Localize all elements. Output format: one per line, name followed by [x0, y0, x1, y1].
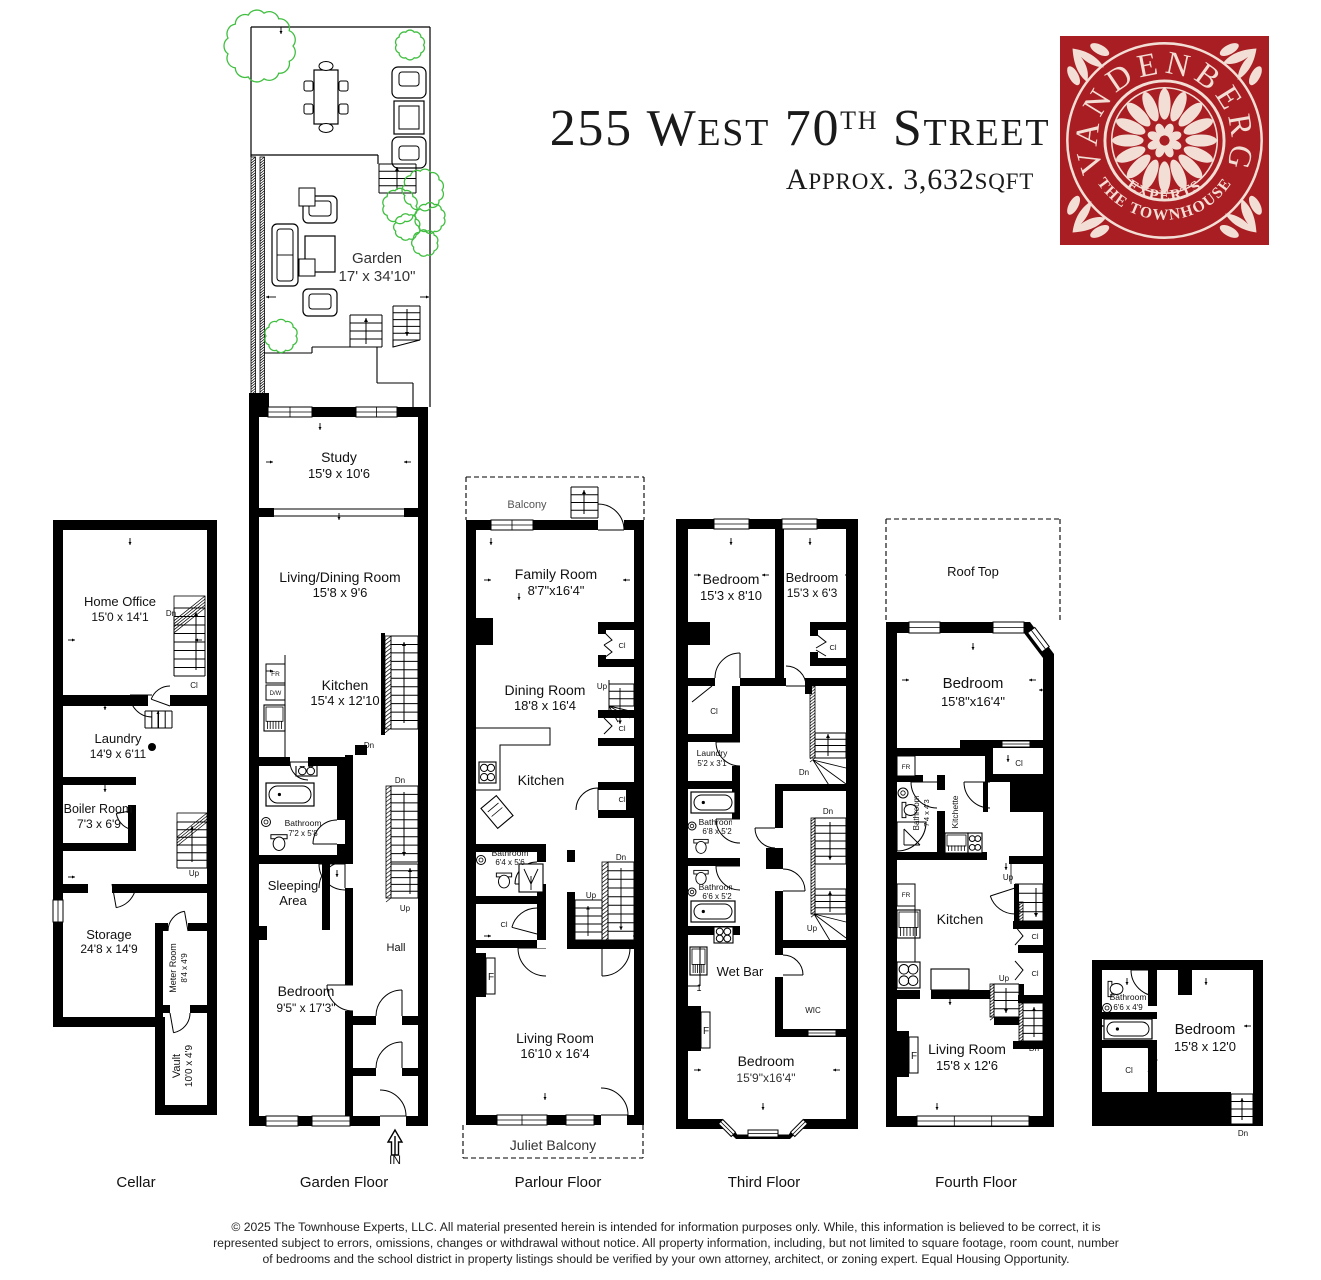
svg-text:Kitchen: Kitchen — [937, 911, 984, 927]
svg-text:Living/Dining Room: Living/Dining Room — [279, 569, 400, 585]
svg-text:Family Room: Family Room — [515, 566, 597, 582]
svg-text:Juliet Balcony: Juliet Balcony — [510, 1137, 596, 1153]
svg-text:15'8 x 12'0: 15'8 x 12'0 — [1174, 1039, 1236, 1054]
svg-text:16'10 x 16'4: 16'10 x 16'4 — [520, 1046, 589, 1061]
svg-text:Cl: Cl — [710, 707, 718, 716]
svg-text:Bathroom: Bathroom — [1110, 992, 1147, 1002]
svg-text:15'9"x16'4": 15'9"x16'4" — [736, 1071, 795, 1085]
svg-text:Cl: Cl — [829, 643, 836, 652]
svg-text:Living Room: Living Room — [928, 1041, 1006, 1057]
svg-text:9'5" x 17'3": 9'5" x 17'3" — [276, 1001, 335, 1015]
svg-text:Cl: Cl — [500, 920, 507, 929]
svg-text:8'7"x16'4": 8'7"x16'4" — [528, 583, 585, 598]
svg-text:Cl: Cl — [1125, 1066, 1133, 1075]
svg-text:IN: IN — [389, 1153, 401, 1167]
svg-text:Cellar: Cellar — [116, 1174, 155, 1191]
svg-text:of bedrooms and the school dis: of bedrooms and the school district in p… — [262, 1252, 1069, 1266]
svg-text:Up: Up — [807, 924, 818, 933]
svg-text:14'9 x 6'11: 14'9 x 6'11 — [90, 747, 147, 761]
svg-text:Bedroom: Bedroom — [738, 1053, 795, 1069]
svg-text:Kitchette: Kitchette — [950, 795, 960, 828]
svg-text:Third Floor: Third Floor — [728, 1174, 801, 1191]
svg-text:5'2 x 3'1: 5'2 x 3'1 — [697, 759, 727, 768]
svg-text:Area: Area — [279, 893, 307, 908]
svg-text:Boiler Room: Boiler Room — [64, 802, 133, 816]
svg-text:Up: Up — [586, 891, 597, 900]
svg-text:Kitchen: Kitchen — [322, 677, 369, 693]
svg-text:Cl: Cl — [1031, 932, 1038, 941]
svg-text:Cl: Cl — [1031, 969, 1038, 978]
svg-text:Dining Room: Dining Room — [505, 682, 586, 698]
svg-text:© 2025 The Townhouse Experts,: © 2025 The Townhouse Experts, LLC. All m… — [231, 1220, 1100, 1234]
svg-text:F: F — [488, 972, 494, 983]
svg-text:Cl: Cl — [190, 681, 198, 690]
svg-text:Bedroom: Bedroom — [1175, 1021, 1236, 1038]
svg-text:Bedroom: Bedroom — [943, 675, 1004, 692]
svg-text:Living Room: Living Room — [516, 1030, 594, 1046]
svg-text:1: 1 — [696, 983, 701, 993]
svg-text:Bedroom: Bedroom — [786, 570, 839, 585]
svg-text:Laundry: Laundry — [697, 748, 728, 758]
svg-text:Roof Top: Roof Top — [947, 564, 999, 579]
svg-text:FR: FR — [271, 671, 280, 678]
svg-text:15'4 x 12'10: 15'4 x 12'10 — [310, 693, 379, 708]
svg-text:15'3 x 8'10: 15'3 x 8'10 — [700, 588, 762, 603]
svg-text:15'8"x16'4": 15'8"x16'4" — [941, 694, 1005, 709]
svg-text:Garden: Garden — [352, 250, 402, 267]
svg-text:F: F — [911, 1051, 917, 1062]
svg-text:7'2 x 5'8: 7'2 x 5'8 — [288, 829, 318, 838]
svg-text:10'0 x 4'9: 10'0 x 4'9 — [184, 1044, 195, 1087]
svg-text:Fourth Floor: Fourth Floor — [935, 1174, 1017, 1191]
svg-text:Cl: Cl — [618, 641, 625, 650]
svg-text:15'8 x 9'6: 15'8 x 9'6 — [313, 585, 368, 600]
svg-text:Wet Bar: Wet Bar — [717, 964, 764, 979]
svg-text:Up: Up — [999, 974, 1010, 983]
svg-text:15'3 x 6'3: 15'3 x 6'3 — [787, 586, 838, 600]
svg-text:6'6 x 5'2: 6'6 x 5'2 — [702, 892, 732, 901]
svg-text:Cl: Cl — [618, 795, 625, 804]
svg-text:WIC: WIC — [805, 1006, 821, 1015]
svg-text:Dn: Dn — [799, 768, 809, 777]
svg-text:Laundry: Laundry — [95, 731, 142, 746]
svg-text:FR: FR — [902, 764, 911, 771]
svg-text:15'8 x 12'6: 15'8 x 12'6 — [936, 1058, 998, 1073]
svg-text:24'8 x 14'9: 24'8 x 14'9 — [80, 942, 138, 956]
svg-text:Dn: Dn — [166, 609, 176, 618]
svg-text:6'6 x 4'9: 6'6 x 4'9 — [1113, 1003, 1143, 1012]
svg-text:Home Office: Home Office — [84, 594, 156, 609]
svg-text:Sleeping: Sleeping — [268, 878, 319, 893]
svg-text:Garden Floor: Garden Floor — [300, 1174, 388, 1191]
svg-text:Storage: Storage — [86, 927, 132, 942]
svg-text:Bathroom: Bathroom — [492, 848, 529, 858]
svg-text:Up: Up — [400, 904, 411, 913]
svg-text:15'9 x 10'6: 15'9 x 10'6 — [308, 466, 370, 481]
svg-text:Dn: Dn — [1238, 1129, 1248, 1138]
svg-text:Up: Up — [189, 869, 200, 878]
svg-text:Balcony: Balcony — [507, 499, 547, 511]
svg-text:Dn: Dn — [395, 776, 405, 785]
svg-text:Hall: Hall — [387, 942, 406, 954]
svg-text:Up: Up — [1003, 873, 1014, 882]
svg-text:F: F — [703, 1026, 709, 1037]
svg-text:Bathroom: Bathroom — [699, 882, 736, 892]
svg-text:Bedroom: Bedroom — [278, 983, 335, 999]
svg-text:17' x 34'10": 17' x 34'10" — [339, 268, 416, 285]
svg-text:D/W: D/W — [270, 691, 282, 697]
svg-text:6'4 x 5'6: 6'4 x 5'6 — [495, 858, 525, 867]
svg-text:Bedroom: Bedroom — [703, 571, 760, 587]
svg-text:Dn: Dn — [616, 853, 626, 862]
svg-text:Cl: Cl — [1015, 759, 1023, 768]
svg-text:Parlour Floor: Parlour Floor — [515, 1174, 602, 1191]
svg-text:Kitchen: Kitchen — [518, 772, 565, 788]
svg-text:Study: Study — [321, 449, 357, 465]
svg-text:Bathroom: Bathroom — [912, 795, 921, 830]
svg-text:7'4 x 4'3: 7'4 x 4'3 — [922, 799, 931, 826]
svg-text:Cl: Cl — [618, 724, 625, 733]
svg-text:Bathroom: Bathroom — [285, 818, 322, 828]
svg-text:18'8 x 16'4: 18'8 x 16'4 — [514, 698, 576, 713]
svg-text:15'0 x 14'1: 15'0 x 14'1 — [91, 610, 149, 624]
svg-text:8'4 x 4'9: 8'4 x 4'9 — [180, 953, 189, 983]
svg-text:Up: Up — [597, 682, 608, 691]
svg-text:Meter Room: Meter Room — [168, 943, 178, 993]
svg-text:7'3 x 6'9: 7'3 x 6'9 — [77, 817, 121, 831]
svg-text:represented subject to errors,: represented subject to errors, omissions… — [213, 1236, 1119, 1250]
svg-text:Dn: Dn — [823, 807, 833, 816]
svg-text:Vault: Vault — [171, 1054, 183, 1078]
svg-text:FR: FR — [902, 892, 911, 899]
